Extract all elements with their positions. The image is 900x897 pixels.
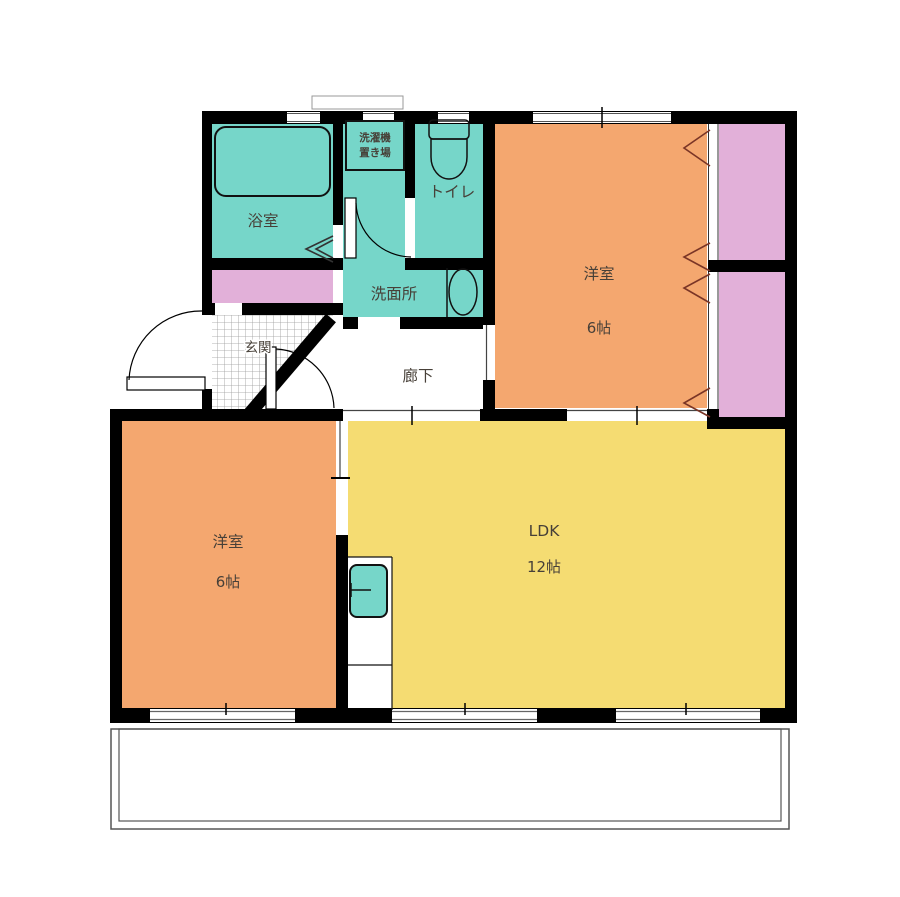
wall-mid-left — [110, 409, 336, 421]
window-top-1 — [287, 112, 320, 123]
floor-plan-page: 浴室 洗濯機 置き場 トイレ 洗面所 玄関 廊下 洋室 6帖 洋室 6帖 LDK… — [0, 0, 900, 897]
wall-kitchen — [336, 535, 348, 710]
bedroom1-label: 洋室 — [583, 265, 614, 283]
bedroom2-size: 6帖 — [216, 573, 241, 591]
wall-left-lower — [110, 409, 122, 720]
wall-closet-bottom — [707, 417, 797, 429]
opening-washroom — [358, 317, 400, 329]
bathroom-label: 浴室 — [247, 212, 278, 230]
wall-toilet-left — [405, 111, 415, 198]
toilet-label: トイレ — [429, 183, 476, 201]
entrance-label: 玄関 — [245, 339, 272, 356]
ldk-area — [348, 421, 785, 710]
washer-label-line2: 置き場 — [359, 146, 391, 159]
shoe-closet-area — [212, 270, 333, 303]
floor-plan-drawing: 浴室 洗濯機 置き場 トイレ 洗面所 玄関 廊下 洋室 6帖 洋室 6帖 LDK… — [0, 0, 900, 897]
bedroom2-area — [122, 421, 336, 710]
wall-bathroom-bottom — [202, 258, 343, 270]
window-top-3 — [438, 112, 469, 123]
wall-left-upper — [202, 111, 212, 315]
entrance-step-gap — [215, 303, 242, 315]
washing-machine-box — [346, 121, 404, 170]
door-gap-bathroom — [333, 225, 343, 258]
eave-window-mark — [312, 96, 403, 109]
bathroom-area — [212, 124, 333, 258]
wall-bathroom-right — [333, 111, 343, 225]
ldk-size: 12帖 — [527, 558, 561, 576]
closet2-area — [719, 272, 785, 417]
bedroom1-size: 6帖 — [587, 319, 612, 337]
wall-toilet-bottom — [405, 258, 493, 270]
wall-bedroom1-left — [483, 111, 495, 325]
door-gap-toilet — [405, 198, 415, 258]
wall-mid-center — [480, 409, 567, 421]
closet1-area — [719, 124, 785, 260]
ldk-label: LDK — [529, 522, 561, 540]
washroom-label: 洗面所 — [371, 285, 418, 303]
washer-label-line1: 洗濯機 — [359, 131, 391, 144]
wall-closet-divider — [708, 260, 797, 272]
door-bedroom1-entry — [483, 325, 495, 380]
hallway-label: 廊下 — [402, 367, 433, 385]
bedroom2-label: 洋室 — [212, 533, 243, 551]
